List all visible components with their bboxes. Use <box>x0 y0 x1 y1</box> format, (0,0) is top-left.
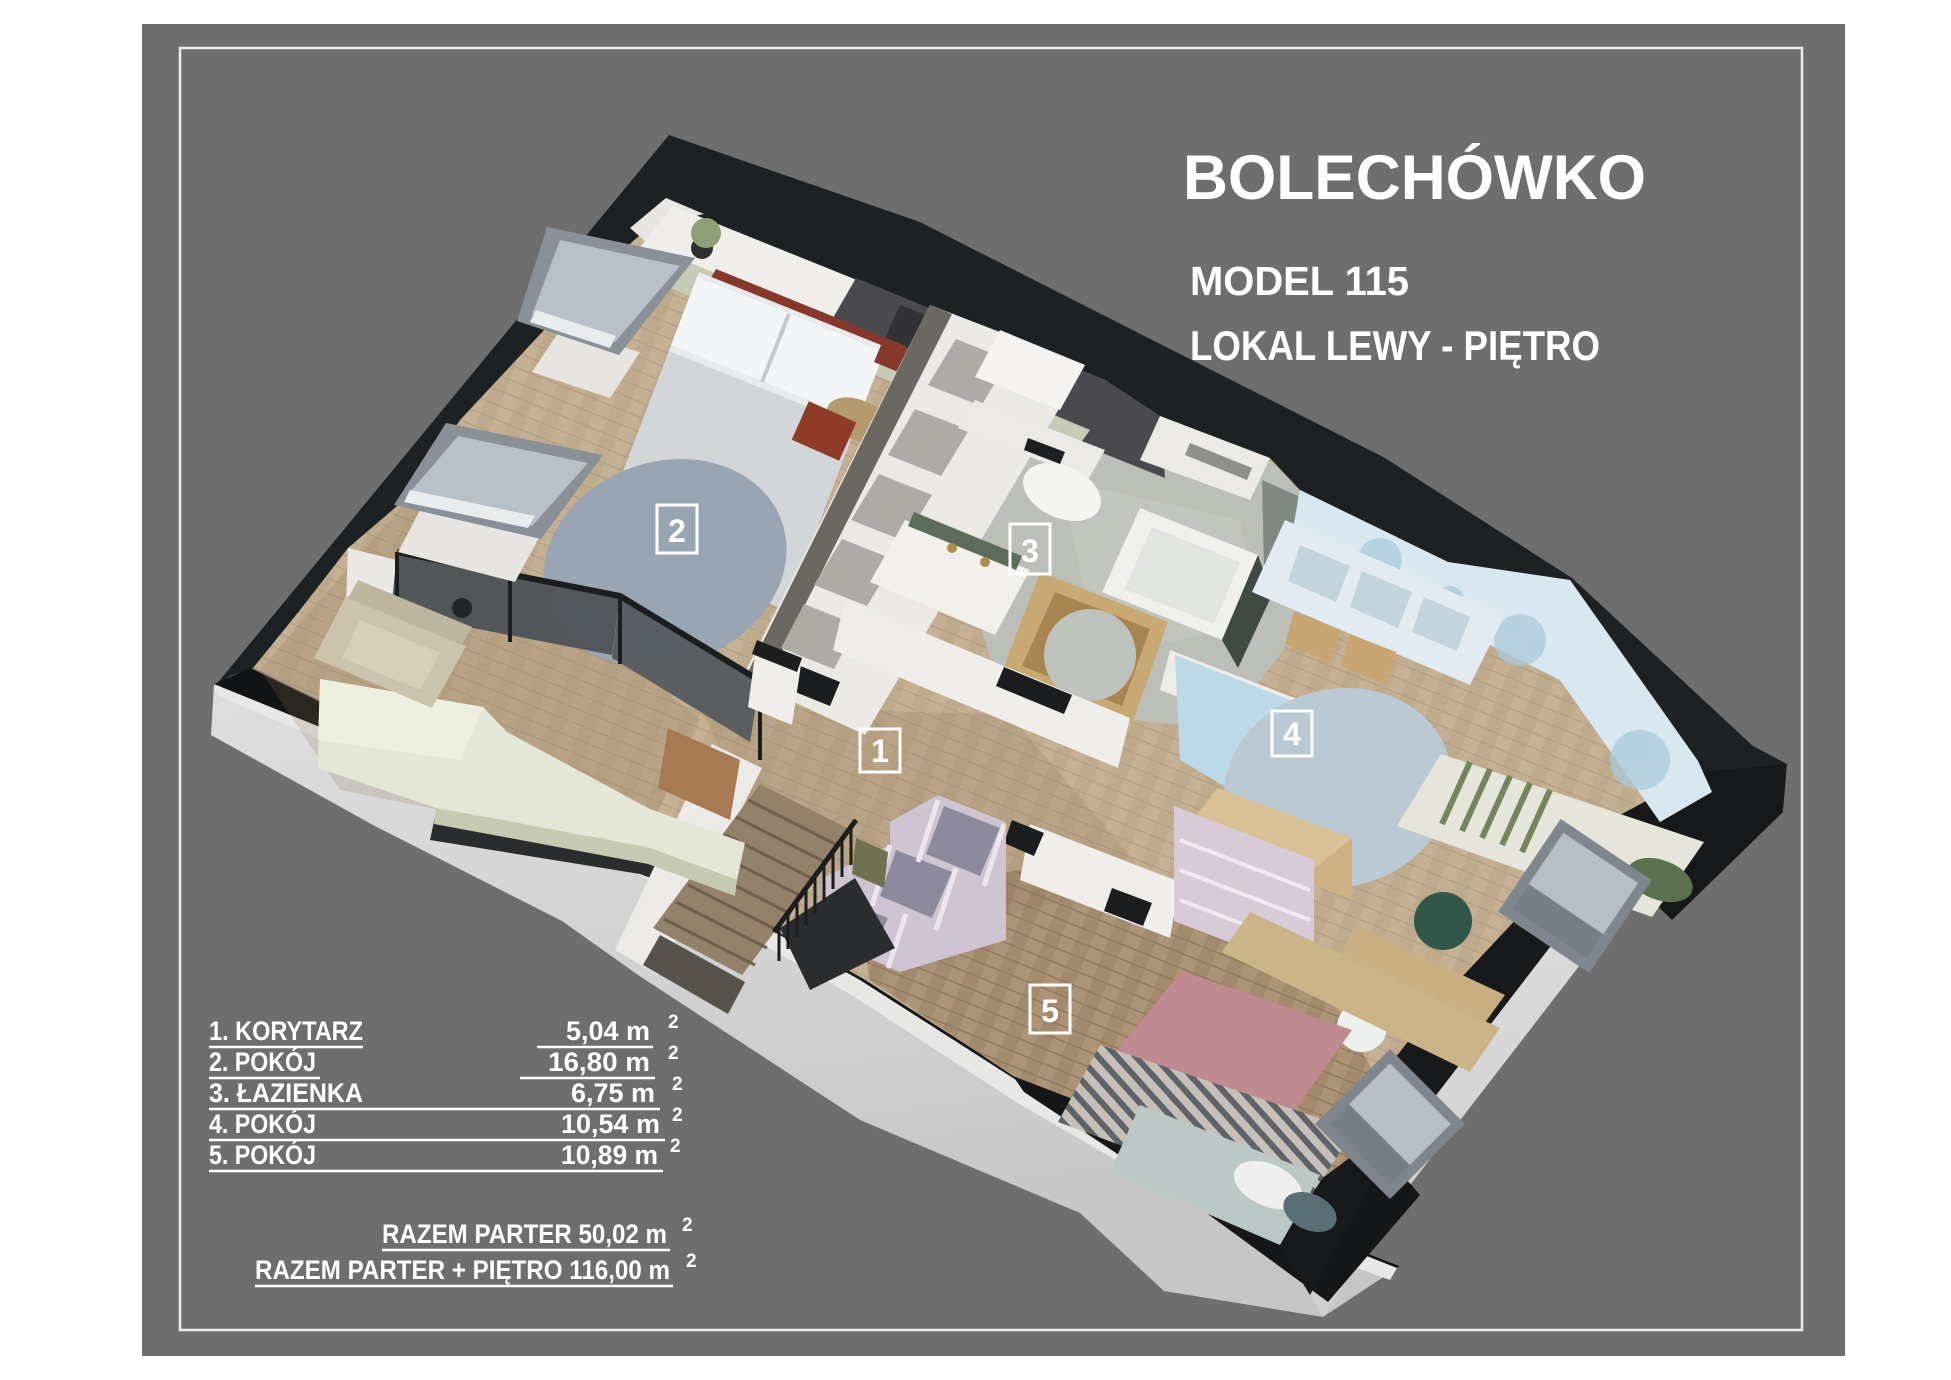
svg-text:5,04 m: 5,04 m <box>566 1016 650 1046</box>
svg-text:5: 5 <box>1041 993 1059 1029</box>
svg-text:3: 3 <box>1021 533 1039 569</box>
svg-text:1. KORYTARZ: 1. KORYTARZ <box>209 1016 363 1046</box>
svg-text:5. POKÓJ: 5. POKÓJ <box>209 1139 316 1170</box>
svg-text:MODEL 115: MODEL 115 <box>1190 258 1409 304</box>
svg-text:2: 2 <box>672 1074 683 1095</box>
svg-text:2: 2 <box>670 1136 681 1157</box>
svg-text:LOKAL LEWY - PIĘTRO: LOKAL LEWY - PIĘTRO <box>1190 322 1600 369</box>
svg-text:10,89 m: 10,89 m <box>561 1140 658 1170</box>
svg-text:2. POKÓJ: 2. POKÓJ <box>209 1046 316 1077</box>
svg-text:RAZEM PARTER + PIĘTRO 116,00: RAZEM PARTER + PIĘTRO 116,00 m <box>255 1255 670 1285</box>
svg-text:2: 2 <box>682 1215 693 1236</box>
svg-text:2: 2 <box>686 1251 697 1272</box>
svg-text:4: 4 <box>1283 716 1301 752</box>
svg-text:BOLECHÓWKO: BOLECHÓWKO <box>1183 143 1646 213</box>
svg-text:2: 2 <box>668 1043 679 1064</box>
svg-text:2: 2 <box>668 1012 679 1033</box>
svg-text:RAZEM PARTER 50,02 m: RAZEM PARTER 50,02 m <box>382 1219 667 1249</box>
svg-text:1: 1 <box>871 733 889 769</box>
svg-text:2: 2 <box>672 1105 683 1126</box>
svg-text:16,80 m: 16,80 m <box>548 1047 650 1077</box>
svg-text:4. POKÓJ: 4. POKÓJ <box>209 1108 316 1139</box>
svg-text:6,75 m: 6,75 m <box>571 1078 655 1108</box>
svg-text:10,54 m: 10,54 m <box>561 1109 660 1139</box>
svg-text:2: 2 <box>668 513 686 549</box>
svg-text:3. ŁAZIENKA: 3. ŁAZIENKA <box>209 1078 363 1108</box>
